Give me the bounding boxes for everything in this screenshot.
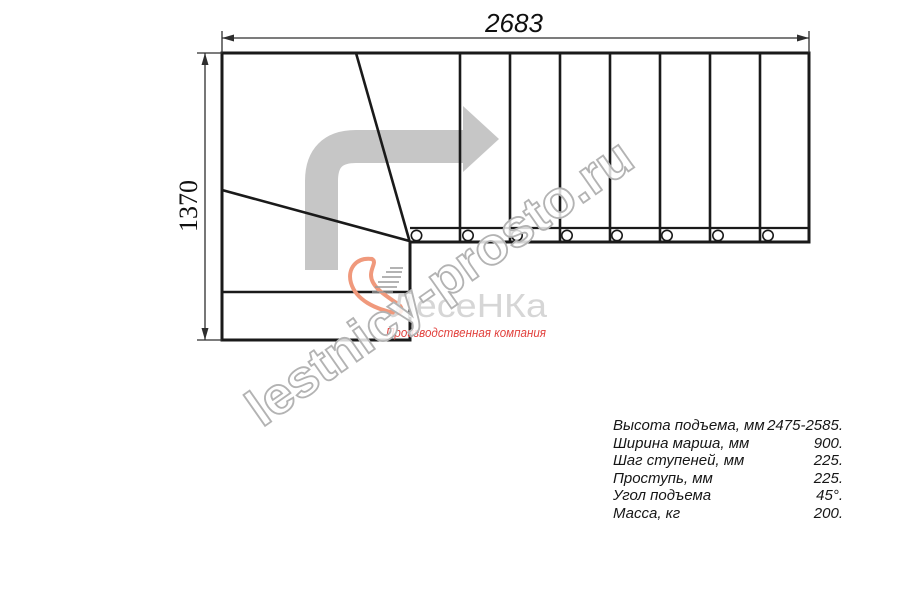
spec-label: Высота подъема, мм: [613, 417, 765, 435]
spec-row-height: Высота подъема, мм 2475-2585.: [613, 417, 843, 435]
spec-label: Проступь, мм: [613, 470, 713, 488]
spec-row-step-pitch: Шаг ступеней, мм 225.: [613, 452, 843, 470]
staircase-drawing-page: { "dimensions": { "width_label": "2683",…: [0, 0, 900, 600]
spec-value: 225.: [814, 470, 843, 488]
spec-label: Ширина марша, мм: [613, 435, 749, 453]
width-dimension-label: 2683: [484, 8, 543, 38]
spec-row-mass: Масса, кг 200.: [613, 505, 843, 523]
dim-arrow-left-icon: [222, 35, 234, 42]
height-dimension: 1370: [174, 53, 222, 340]
dim-arrow-up-icon: [202, 53, 209, 65]
watermark-text: lestnicy-prosto.ru: [236, 128, 644, 438]
spec-value: 900.: [814, 435, 843, 453]
dim-arrow-right-icon: [797, 35, 809, 42]
spec-table: Высота подъема, мм 2475-2585. Ширина мар…: [613, 417, 843, 522]
spec-label: Угол подъема: [613, 487, 711, 505]
spec-row-flight-width: Ширина марша, мм 900.: [613, 435, 843, 453]
spec-value: 2475-2585.: [767, 417, 843, 435]
height-dimension-label: 1370: [174, 180, 203, 232]
spec-value: 45°.: [816, 487, 843, 505]
spec-value: 225.: [814, 452, 843, 470]
dim-arrow-down-icon: [202, 328, 209, 340]
width-dimension: 2683: [222, 8, 809, 53]
spec-label: Масса, кг: [613, 505, 680, 523]
spec-label: Шаг ступеней, мм: [613, 452, 744, 470]
spec-value: 200.: [814, 505, 843, 523]
spec-row-angle: Угол подъема 45°.: [613, 487, 843, 505]
spec-row-tread: Проступь, мм 225.: [613, 470, 843, 488]
direction-arrow-head: [463, 106, 499, 172]
